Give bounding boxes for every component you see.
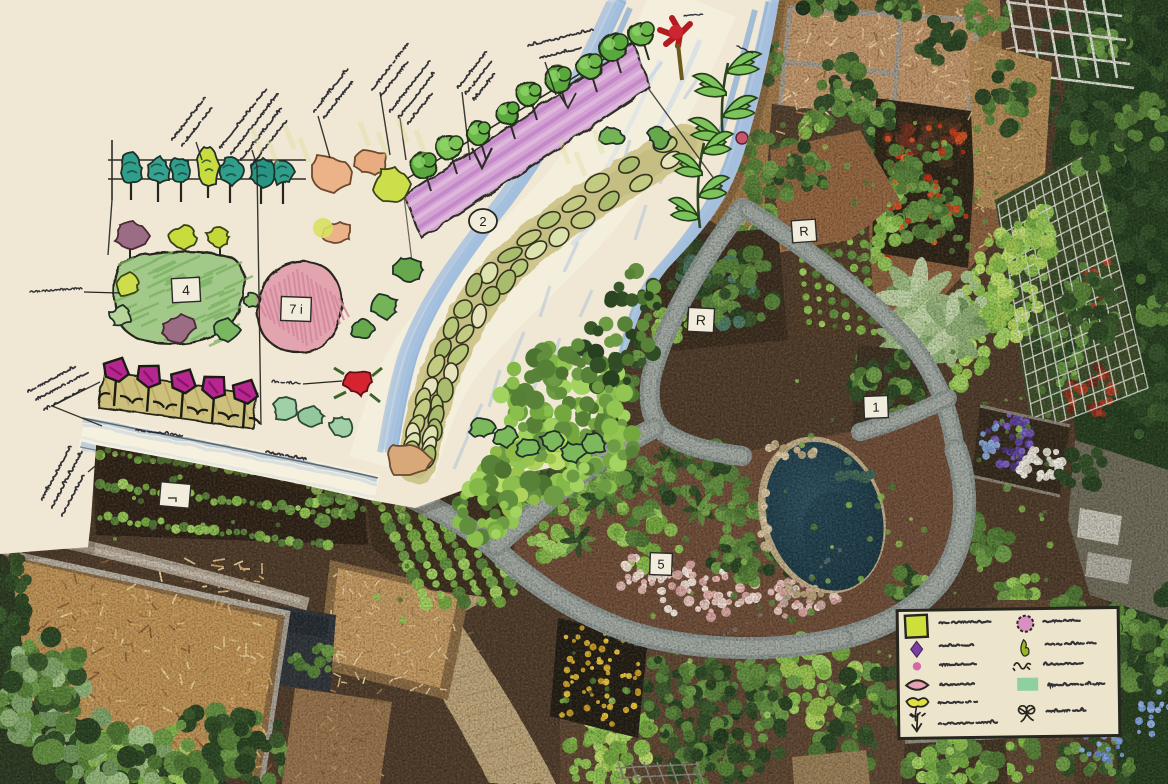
svg-text:7 i: 7 i	[289, 301, 303, 316]
svg-text:2: 2	[479, 214, 486, 229]
svg-text:4: 4	[182, 282, 191, 298]
svg-text:R: R	[799, 223, 809, 239]
svg-text:1: 1	[872, 400, 880, 415]
svg-text:5: 5	[657, 557, 665, 572]
svg-text:R: R	[696, 312, 707, 329]
